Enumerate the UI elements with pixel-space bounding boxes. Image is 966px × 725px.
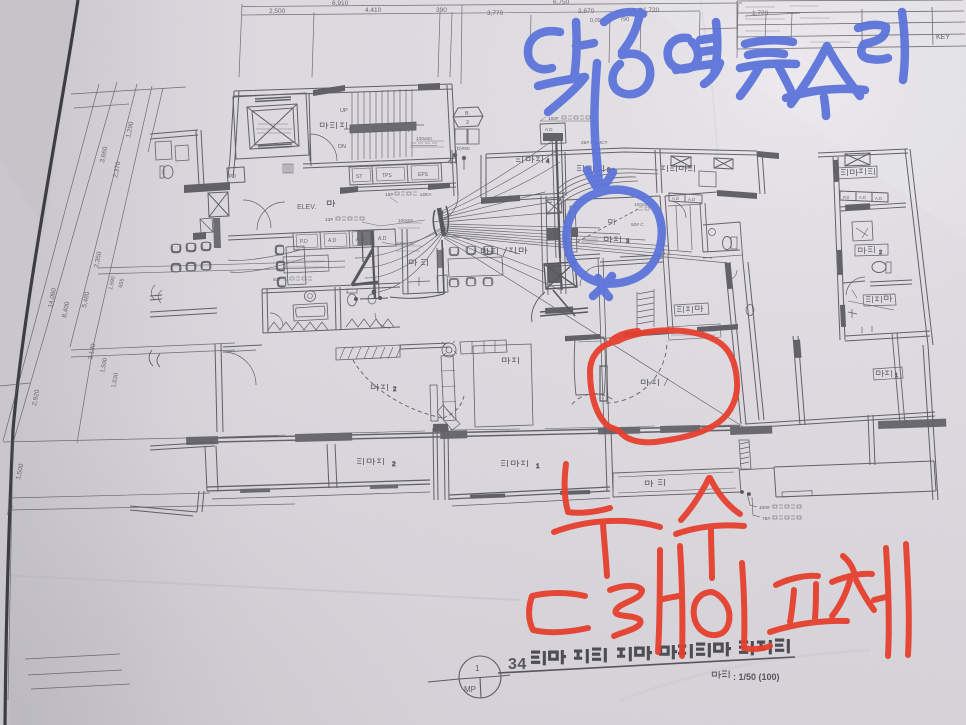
svg-text:A.D: A.D xyxy=(378,236,387,242)
svg-text:75#: 75# xyxy=(762,516,770,522)
svg-text:P.D: P.D xyxy=(843,195,849,200)
svg-text:1: 1 xyxy=(895,373,898,379)
svg-text:1,720: 1,720 xyxy=(752,10,769,17)
svg-text:ELEV.: ELEV. xyxy=(297,204,316,211)
svg-text:390: 390 xyxy=(436,7,447,14)
svg-text:ST: ST xyxy=(356,174,362,180)
svg-text:2,870: 2,870 xyxy=(578,8,595,15)
svg-text:6,750: 6,750 xyxy=(553,0,570,6)
svg-text:A.D: A.D xyxy=(356,237,365,243)
svg-text:TPS: TPS xyxy=(382,173,392,179)
svg-text:B: B xyxy=(465,111,469,117)
svg-text:50# C: 50# C xyxy=(631,222,644,228)
svg-text:2: 2 xyxy=(466,120,469,126)
svg-text:A.D: A.D xyxy=(328,238,337,244)
svg-text:A.D: A.D xyxy=(545,127,553,132)
svg-text:(D)#50: (D)#50 xyxy=(455,146,470,152)
svg-text:: 1/50 (100): : 1/50 (100) xyxy=(733,672,780,682)
svg-text:UP: UP xyxy=(340,108,348,114)
svg-text:4,410: 4,410 xyxy=(365,7,382,14)
svg-text:x2EA: x2EA xyxy=(420,192,432,198)
svg-text:KEY: KEY xyxy=(936,34,950,41)
svg-text:2: 2 xyxy=(879,250,882,256)
svg-text:2: 2 xyxy=(392,461,396,468)
svg-text:PD: PD xyxy=(229,174,236,180)
svg-text:1: 1 xyxy=(475,664,480,673)
svg-text:EPS: EPS xyxy=(418,172,429,178)
svg-text:1: 1 xyxy=(536,463,540,470)
svg-text:P.D: P.D xyxy=(300,239,308,245)
svg-text:100x100: 100x100 xyxy=(396,241,414,246)
svg-text:3,770: 3,770 xyxy=(487,10,504,17)
svg-text:15#: 15# xyxy=(385,192,393,198)
svg-text:13#: 13# xyxy=(325,217,333,223)
svg-text:A.D: A.D xyxy=(875,196,882,201)
svg-text:MP: MP xyxy=(464,685,476,694)
svg-text:A.D: A.D xyxy=(859,195,866,200)
svg-text:2,500: 2,500 xyxy=(269,8,286,15)
svg-text:100x50: 100x50 xyxy=(398,218,414,223)
svg-text:A.D: A.D xyxy=(672,196,679,201)
svg-text:100#: 100# xyxy=(759,505,770,511)
svg-text:6,910: 6,910 xyxy=(332,0,349,7)
svg-text:34: 34 xyxy=(508,656,527,673)
svg-text:790: 790 xyxy=(620,17,629,23)
svg-text:DN: DN xyxy=(338,144,346,150)
svg-text:A.D: A.D xyxy=(688,197,695,202)
